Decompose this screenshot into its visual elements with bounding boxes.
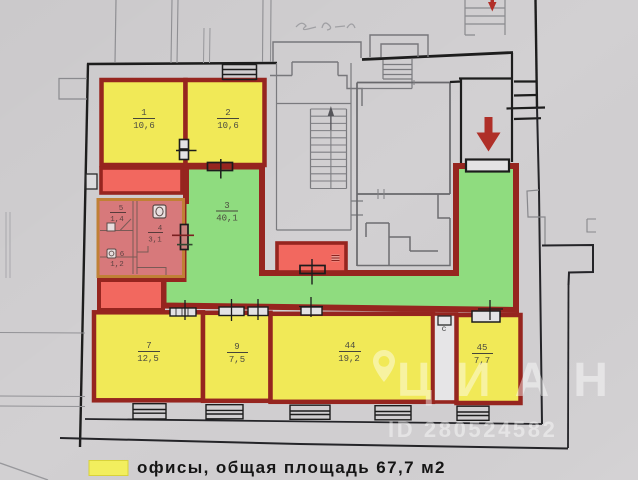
svg-text:10,6: 10,6 — [217, 121, 239, 131]
svg-text:12,5: 12,5 — [137, 354, 159, 364]
svg-text:19,2: 19,2 — [338, 354, 360, 364]
svg-text:7,5: 7,5 — [229, 355, 245, 365]
svg-text:3,1: 3,1 — [148, 237, 162, 245]
svg-text:2: 2 — [225, 108, 230, 118]
svg-text:1,2: 1,2 — [110, 261, 124, 269]
svg-text:40,1: 40,1 — [216, 214, 238, 224]
svg-text:1: 1 — [141, 108, 146, 118]
svg-text:ID 280524582: ID 280524582 — [388, 417, 557, 442]
svg-text:5: 5 — [119, 205, 124, 213]
svg-text:4: 4 — [158, 225, 163, 233]
svg-text:44: 44 — [345, 341, 356, 351]
svg-text:10,6: 10,6 — [133, 121, 155, 131]
svg-text:3: 3 — [224, 201, 229, 211]
svg-text:7: 7 — [146, 341, 151, 351]
svg-text:6: 6 — [120, 251, 125, 259]
svg-text:офисы, общая площадь 67,7 м2: офисы, общая площадь 67,7 м2 — [137, 458, 446, 477]
svg-text:9: 9 — [234, 342, 239, 352]
svg-text:с: с — [442, 325, 447, 334]
svg-text:45: 45 — [477, 343, 488, 353]
svg-text:ЦИАН: ЦИАН — [397, 354, 632, 407]
